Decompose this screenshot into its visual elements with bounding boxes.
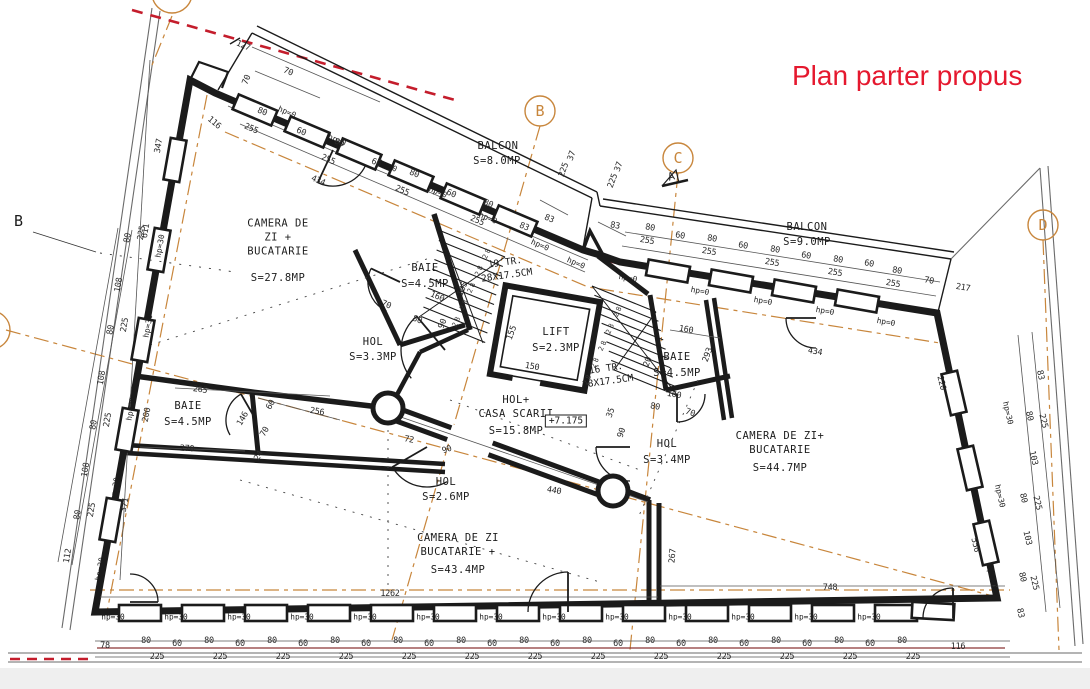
window xyxy=(233,94,278,125)
dim-label: 116 xyxy=(951,642,965,652)
room-balcon-right-area: S=9.0MP xyxy=(783,235,831,249)
dim-label: 80 xyxy=(644,222,655,234)
window xyxy=(285,116,330,147)
window-sill-label: hp=30 xyxy=(416,613,439,622)
dim-label: 80 xyxy=(456,636,466,646)
room-camera-bottom-name: CAMERA DE ZI BUCATARIE + xyxy=(417,531,499,559)
section-label-b: B xyxy=(14,212,23,230)
dim-label: 60 xyxy=(863,258,874,270)
dim-label: 78 xyxy=(100,641,110,651)
dim-label: 225 xyxy=(528,652,542,662)
room-balcon-right-name: BALCON xyxy=(787,220,828,234)
dim-label: 1262 xyxy=(380,589,399,599)
window-sill-label: hp=30 xyxy=(857,613,880,622)
room-lift-name: LIFT xyxy=(542,325,569,339)
room-baie-tl-area: S=4.5MP xyxy=(401,277,449,291)
window xyxy=(912,602,955,620)
dim-label: 225 xyxy=(402,652,416,662)
window-sill-label: hp=30 xyxy=(542,613,565,622)
dim-label: 60 xyxy=(737,240,748,252)
dim-label: 80 xyxy=(88,419,100,430)
window xyxy=(646,259,690,282)
room-baie-right-area: S=4.5MP xyxy=(653,366,701,380)
dim-label: 80 xyxy=(519,636,529,646)
dim-label: 83 xyxy=(1014,607,1026,619)
dim-label: 80 xyxy=(582,636,592,646)
room-camera-right-area: S=44.7MP xyxy=(753,461,808,475)
window xyxy=(497,605,539,621)
dim-label: 225 xyxy=(780,652,794,662)
dim-label: 80 xyxy=(649,401,660,413)
dim-label: 80 xyxy=(771,636,781,646)
dim-label: 267 xyxy=(667,548,678,563)
window xyxy=(709,269,753,292)
dim-label: 80 xyxy=(706,233,717,245)
window-sill-label: hp=30 xyxy=(353,613,376,622)
dim-label: 225 xyxy=(591,652,605,662)
room-hol-right-name: HOL xyxy=(657,437,677,451)
window xyxy=(182,605,224,621)
window xyxy=(371,605,413,621)
window xyxy=(686,605,728,621)
room-hol-right-area: S=3.4MP xyxy=(643,453,691,467)
window-sill-label: hp=30 xyxy=(668,613,691,622)
window xyxy=(245,605,287,621)
generated-drawing xyxy=(99,94,998,621)
grid-axes xyxy=(6,16,1059,650)
dim-label: 225 xyxy=(465,652,479,662)
window-sill-label: hp=30 xyxy=(101,613,124,622)
window xyxy=(119,605,161,621)
window xyxy=(772,279,816,302)
room-casa-scarii-area: S=15.8MP xyxy=(489,424,544,438)
dim-label: 60 xyxy=(550,639,560,649)
bottom-margin-band xyxy=(0,668,1090,689)
window-sill-label: hp=30 xyxy=(605,613,628,622)
room-balcon-left-area: S=8.0MP xyxy=(473,154,521,168)
dim-label: 270 xyxy=(180,444,195,455)
dim-label: 80 xyxy=(708,636,718,646)
window xyxy=(812,605,854,621)
window xyxy=(941,371,966,416)
room-hol-center-area: S=2.6MP xyxy=(422,490,470,504)
dim-label: 80 xyxy=(645,636,655,646)
dim-label: 60 xyxy=(676,639,686,649)
room-hol-tl-name: HOL xyxy=(363,335,383,349)
room-lift-area: S=2.3MP xyxy=(532,341,580,355)
window xyxy=(308,605,350,621)
window xyxy=(493,205,538,236)
dim-label: 80 xyxy=(330,636,340,646)
dim-label: 225 xyxy=(339,652,353,662)
dim-label: 80 xyxy=(897,636,907,646)
dim-label: 80 xyxy=(141,636,151,646)
dim-label: 60 xyxy=(172,639,182,649)
dim-label: 225 xyxy=(843,652,857,662)
dim-label: 60 xyxy=(487,639,497,649)
dim-label: 748 xyxy=(823,583,837,593)
room-baie-left-area: S=4.5MP xyxy=(164,415,212,429)
dim-label: 80 xyxy=(204,636,214,646)
dim-label: 225 xyxy=(654,652,668,662)
window xyxy=(434,605,476,621)
dim-label: 80 xyxy=(832,254,843,266)
room-camera-right-name: CAMERA DE ZI+ BUCATARIE xyxy=(736,429,825,457)
room-baie-right-name: BAIE xyxy=(663,350,690,364)
dim-label: 83 xyxy=(609,220,620,232)
room-camera-tl-area: S=27.8MP xyxy=(251,271,306,285)
dim-label: 80 xyxy=(122,232,134,243)
dim-label: 70 xyxy=(923,275,934,287)
dim-label: 60 xyxy=(674,230,685,242)
grid-marker-c: C xyxy=(673,148,682,168)
window-sill-label: hp=30 xyxy=(731,613,754,622)
dim-label: 60 xyxy=(424,639,434,649)
grid-marker-d: D xyxy=(1038,215,1047,235)
dim-label: 80 xyxy=(1023,410,1035,422)
room-baie-tl-name: BAIE xyxy=(411,261,438,275)
grid-marker-b: B xyxy=(535,101,544,121)
window xyxy=(163,138,186,182)
door-arc xyxy=(596,447,630,481)
room-casa-scarii-name: HOL+ CASA SCARII xyxy=(478,393,553,421)
page-title: Plan parter propus xyxy=(792,60,1022,92)
dim-label: 83 xyxy=(1034,369,1046,381)
window-sill-label: hp=30 xyxy=(794,613,817,622)
dim-label: 80 xyxy=(393,636,403,646)
dim-label: 80 xyxy=(72,509,84,520)
dim-label: 225 xyxy=(276,652,290,662)
dim-label: 265 xyxy=(192,384,208,396)
grid-circles xyxy=(0,0,1058,349)
window-sill-label: hp=30 xyxy=(290,613,313,622)
dim-label: 60 xyxy=(298,639,308,649)
window xyxy=(623,605,665,621)
dim-label: 60 xyxy=(613,639,623,649)
window xyxy=(749,605,791,621)
window-sill-label: hp=30 xyxy=(164,613,187,622)
dim-label: 60 xyxy=(802,639,812,649)
section-line-b xyxy=(33,232,235,272)
dim-label: 80 xyxy=(1016,571,1028,583)
dim-label: 225 xyxy=(906,652,920,662)
window xyxy=(835,289,879,312)
room-hol-tl-area: S=3.3MP xyxy=(349,350,397,364)
dim-label: 80 xyxy=(769,244,780,256)
dim-label: 80 xyxy=(267,636,277,646)
room-hol-center-name: HOL xyxy=(436,475,456,489)
dim-label: 80 xyxy=(834,636,844,646)
dim-label: 72 xyxy=(403,434,414,446)
dim-label: 225 xyxy=(213,652,227,662)
window-sill-label: hp=30 xyxy=(479,613,502,622)
floor-plan-page: Plan parter propus B C D B A CAMERA DE Z… xyxy=(0,0,1090,689)
window-sill-label: hp=30 xyxy=(227,613,250,622)
dim-label: 60 xyxy=(361,639,371,649)
dim-label: 225 xyxy=(150,652,164,662)
dim-label: 60 xyxy=(865,639,875,649)
door-arc xyxy=(130,574,158,602)
dim-label: 60 xyxy=(739,639,749,649)
level-marker: +7.175 xyxy=(545,415,587,428)
room-camera-bottom-area: S=43.4MP xyxy=(431,563,486,577)
dim-label: 60 xyxy=(235,639,245,649)
dim-label: 60 xyxy=(800,250,811,262)
room-baie-left-name: BAIE xyxy=(174,399,201,413)
window xyxy=(560,605,602,621)
room-camera-tl-name: CAMERA DE ZI + BUCATARIE xyxy=(247,217,308,260)
dim-label: 80 xyxy=(1017,492,1029,504)
room-balcon-left-name: BALCON xyxy=(478,139,519,153)
window xyxy=(957,446,982,491)
dim-label: 225 xyxy=(717,652,731,662)
dim-label: 80 xyxy=(105,324,117,335)
dim-label: 80 xyxy=(891,265,902,277)
